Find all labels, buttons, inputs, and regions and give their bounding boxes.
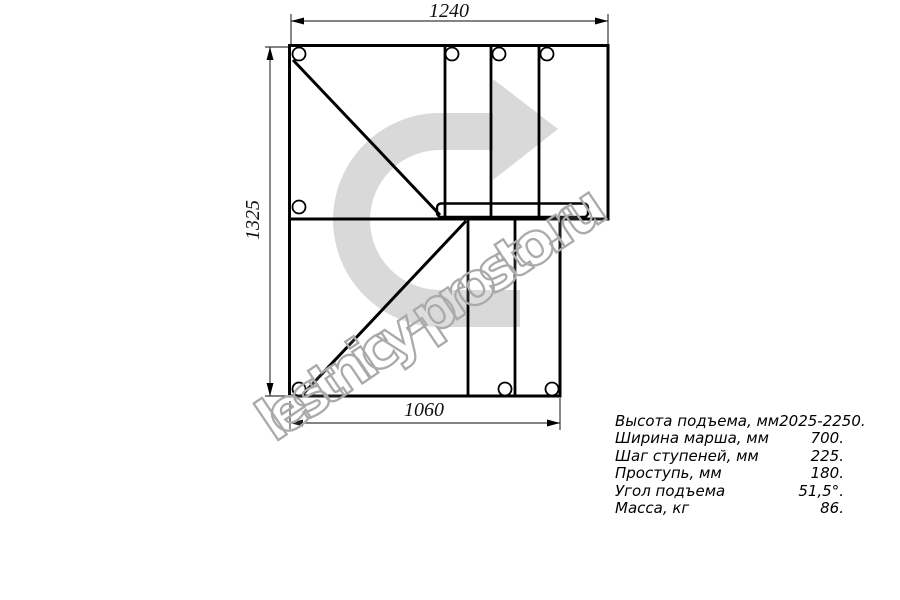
spec-row: Проступь, мм 180. bbox=[615, 465, 844, 482]
mounting-hole bbox=[541, 48, 554, 61]
top-width-dimension-label: 1240 bbox=[389, 0, 509, 23]
dimension-arrowhead bbox=[267, 47, 274, 60]
mounting-hole bbox=[499, 383, 512, 396]
spec-row: Высота подъема, мм 2025-2250. bbox=[615, 413, 844, 430]
spec-value: 86. bbox=[820, 500, 844, 517]
spec-value: 700. bbox=[811, 430, 844, 447]
spec-label: Угол подъема bbox=[615, 483, 725, 500]
dimension-left-height bbox=[265, 47, 288, 396]
spec-table: Высота подъема, мм 2025-2250. Ширина мар… bbox=[615, 413, 844, 517]
spec-label: Шаг ступеней, мм bbox=[615, 448, 759, 465]
mounting-hole bbox=[293, 48, 306, 61]
spec-value: 2025-2250. bbox=[779, 413, 866, 430]
spec-label: Проступь, мм bbox=[615, 465, 722, 482]
spec-value: 225. bbox=[811, 448, 844, 465]
dimension-arrowhead bbox=[547, 420, 560, 427]
staircase-drawing-page: 1240 1325 1060 lestnicy-prosto.ru Высота… bbox=[0, 0, 900, 600]
spec-value: 180. bbox=[811, 465, 844, 482]
spec-label: Ширина марша, мм bbox=[615, 430, 769, 447]
spec-label: Масса, кг bbox=[615, 500, 689, 517]
dimension-arrowhead bbox=[291, 18, 304, 25]
spec-row: Масса, кг 86. bbox=[615, 500, 844, 517]
spec-row: Ширина марша, мм 700. bbox=[615, 430, 844, 447]
dimension-arrowhead bbox=[595, 18, 608, 25]
spec-label: Высота подъема, мм bbox=[615, 413, 779, 430]
spec-value: 51,5°. bbox=[798, 483, 844, 500]
left-height-dimension-label: 1325 bbox=[242, 160, 266, 280]
mounting-hole bbox=[493, 48, 506, 61]
bottom-width-dimension-label: 1060 bbox=[364, 399, 484, 422]
spec-row: Угол подъема 51,5°. bbox=[615, 483, 844, 500]
mounting-hole bbox=[446, 48, 459, 61]
spec-row: Шаг ступеней, мм 225. bbox=[615, 448, 844, 465]
mounting-hole bbox=[293, 201, 306, 214]
mounting-hole bbox=[546, 383, 559, 396]
